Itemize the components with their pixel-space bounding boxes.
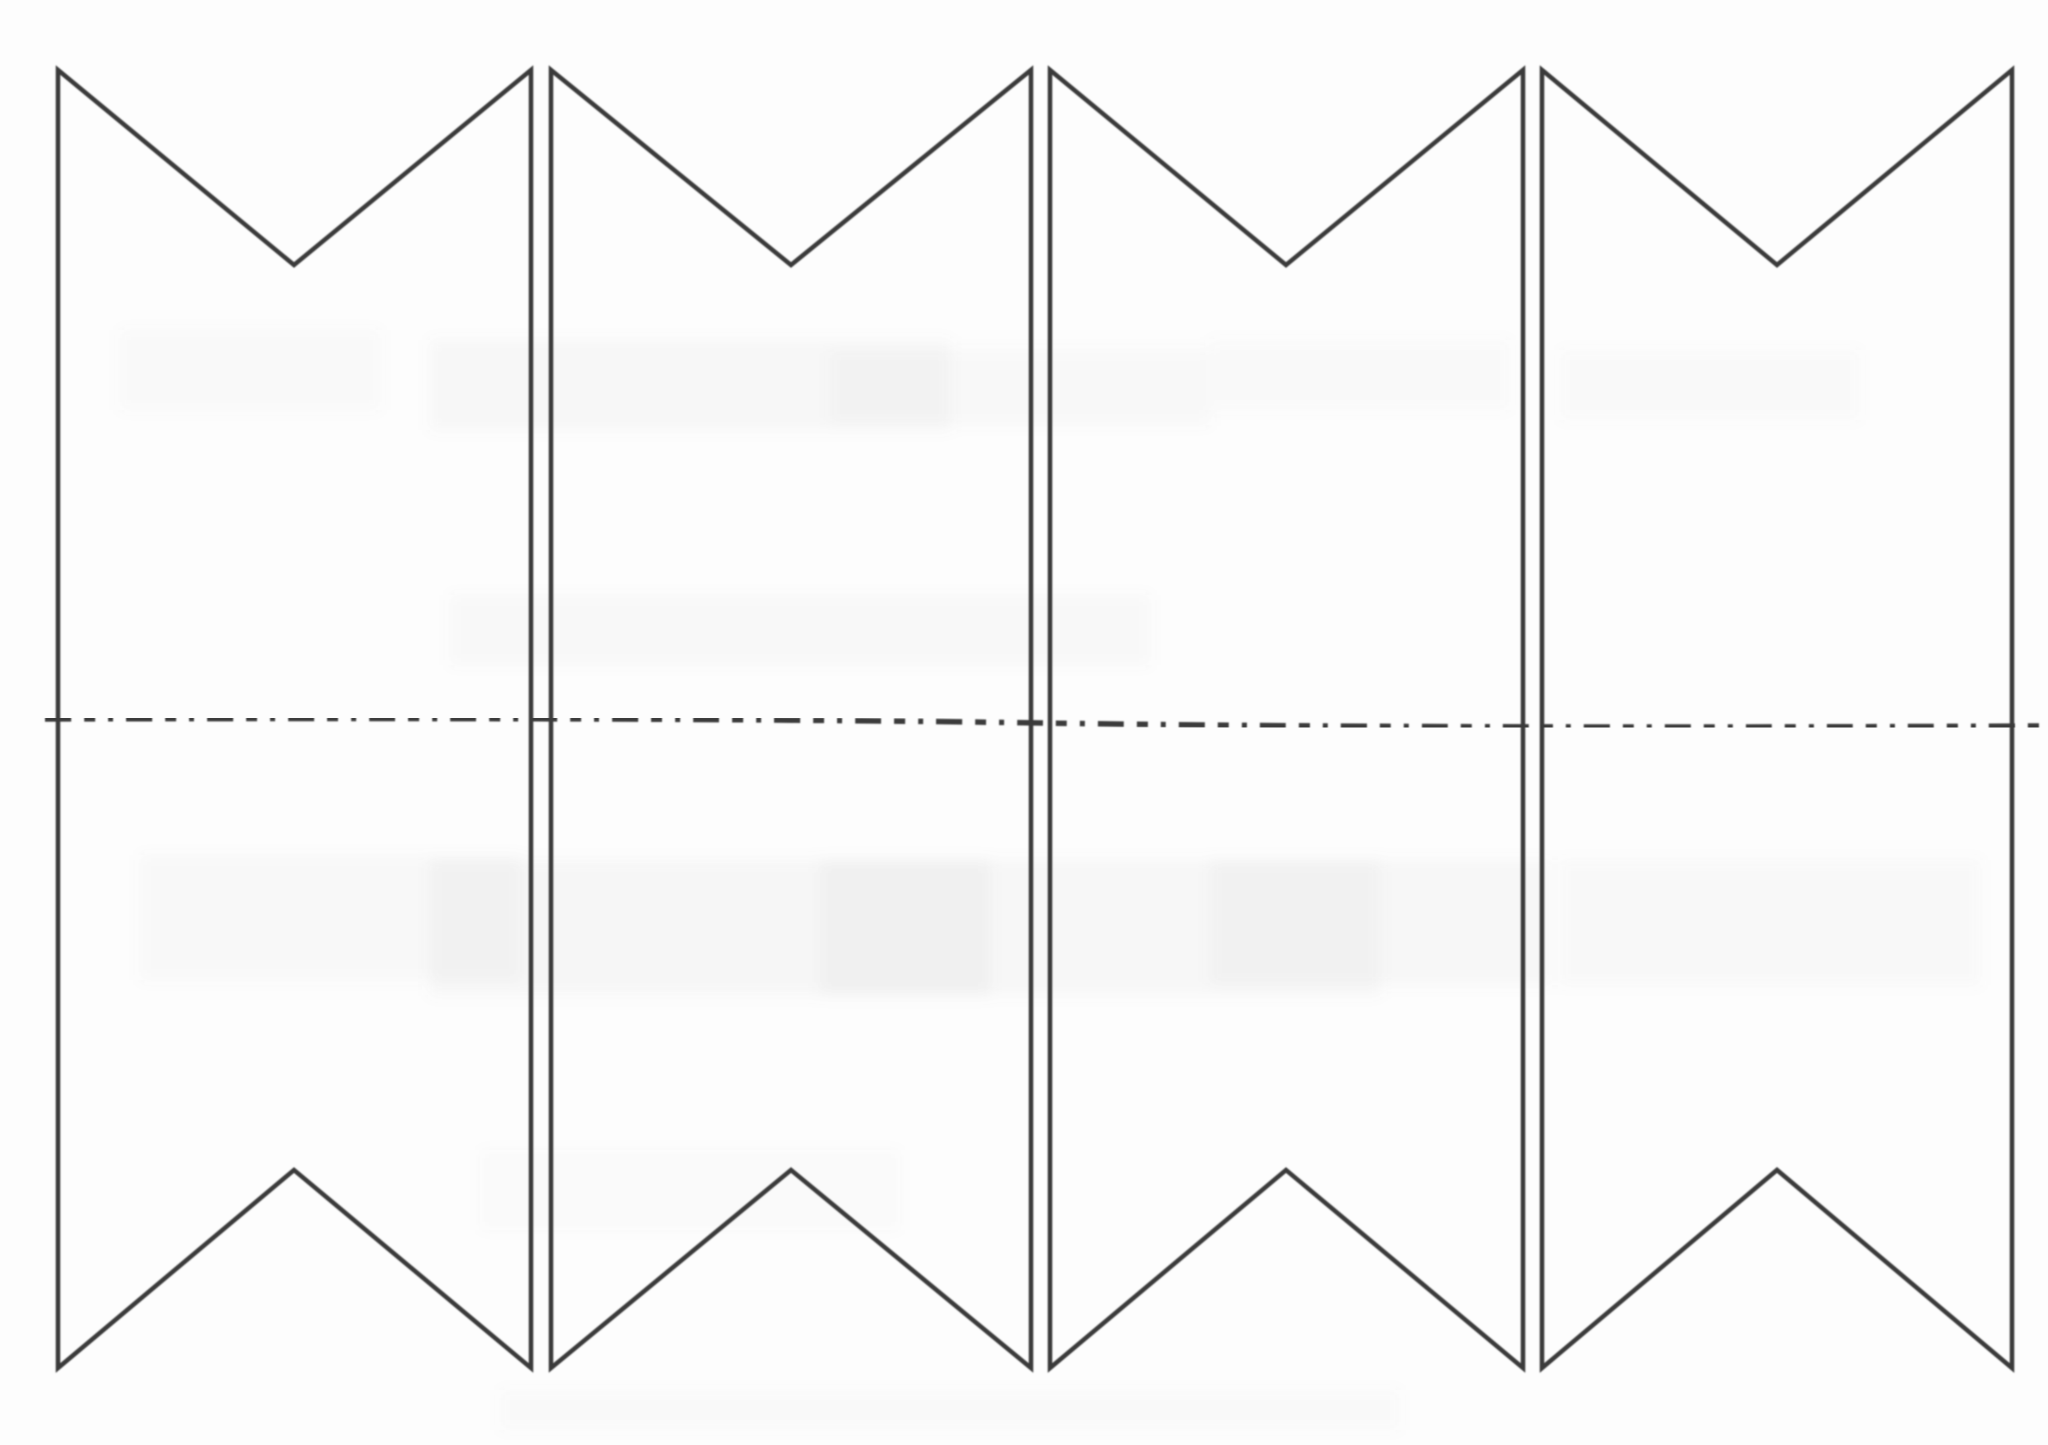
scan-smudge	[120, 330, 380, 410]
scan-smudge	[1210, 340, 1510, 410]
scan-smudge	[830, 350, 1210, 425]
scan-smudge	[500, 1390, 1400, 1430]
scan-smudge	[450, 595, 1150, 665]
scanned-template-page	[0, 0, 2048, 1445]
scan-smudge	[1560, 860, 1980, 985]
scan-smudge	[1210, 860, 1550, 985]
scan-smudge	[1560, 350, 1860, 420]
scan-smudge	[480, 1150, 900, 1230]
paper-chain-template-drawing	[0, 0, 2048, 1445]
